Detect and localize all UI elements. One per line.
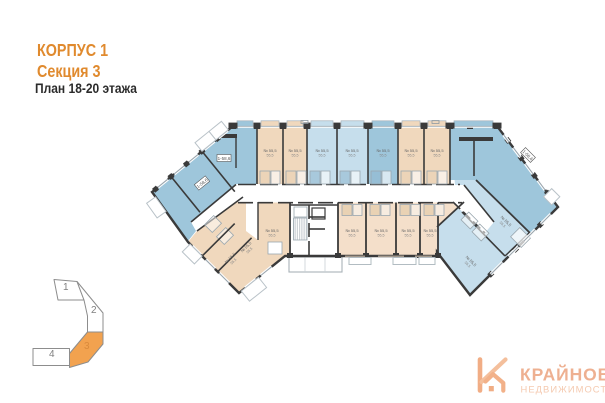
svg-text:№ 55,5: № 55,5 <box>401 228 415 233</box>
svg-text:1-58,6: 1-58,6 <box>218 156 231 161</box>
svg-text:55,5: 55,5 <box>267 154 274 158</box>
svg-text:№ 55,5: № 55,5 <box>345 228 359 233</box>
svg-text:55,5: 55,5 <box>349 234 356 238</box>
svg-text:2: 2 <box>91 305 97 316</box>
svg-text:№ 55,5: № 55,5 <box>376 148 390 153</box>
svg-text:№ 55,5: № 55,5 <box>374 228 388 233</box>
svg-text:55,5: 55,5 <box>380 154 387 158</box>
svg-text:№ 55,5: № 55,5 <box>263 148 277 153</box>
svg-text:НЕДВИЖИМОСТЬ: НЕДВИЖИМОСТЬ <box>521 383 605 394</box>
svg-text:55,5: 55,5 <box>405 234 412 238</box>
svg-text:№ 55,5: № 55,5 <box>423 228 437 233</box>
svg-text:55,5: 55,5 <box>408 154 415 158</box>
svg-text:55,5: 55,5 <box>292 154 299 158</box>
svg-text:55,5: 55,5 <box>269 234 276 238</box>
svg-text:КРАЙНОВ: КРАЙНОВ <box>520 364 605 385</box>
svg-text:№ 55,5: № 55,5 <box>404 148 418 153</box>
svg-text:№ 55,5: № 55,5 <box>345 148 359 153</box>
svg-text:№ 55,5: № 55,5 <box>315 148 329 153</box>
svg-text:№ 55,5: № 55,5 <box>430 148 444 153</box>
svg-text:1: 1 <box>63 282 69 293</box>
svg-text:55,5: 55,5 <box>349 154 356 158</box>
svg-text:55,5: 55,5 <box>427 234 434 238</box>
svg-text:55,5: 55,5 <box>378 234 385 238</box>
svg-text:3: 3 <box>84 341 90 352</box>
svg-text:55,5: 55,5 <box>319 154 326 158</box>
svg-text:№ 55,5: № 55,5 <box>265 228 279 233</box>
svg-text:55,5: 55,5 <box>434 154 441 158</box>
svg-text:№ 55,5: № 55,5 <box>288 148 302 153</box>
svg-text:4: 4 <box>49 349 55 360</box>
